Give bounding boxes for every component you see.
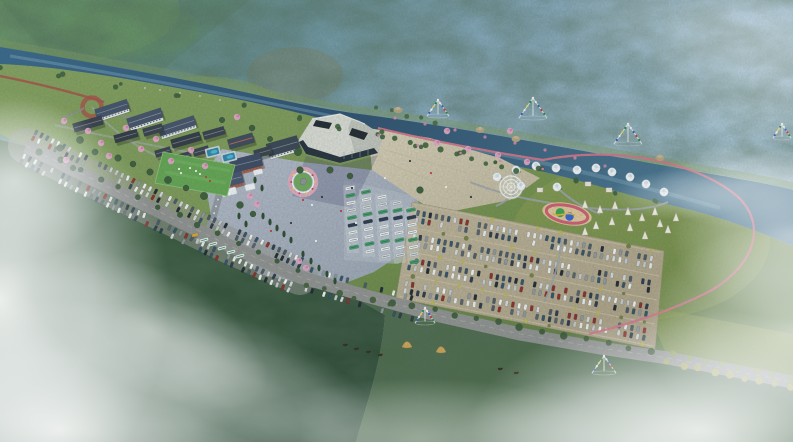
mist-wisp	[610, 170, 750, 220]
aerial-master-plan-rendering	[0, 0, 793, 442]
scene-svg	[0, 0, 793, 442]
